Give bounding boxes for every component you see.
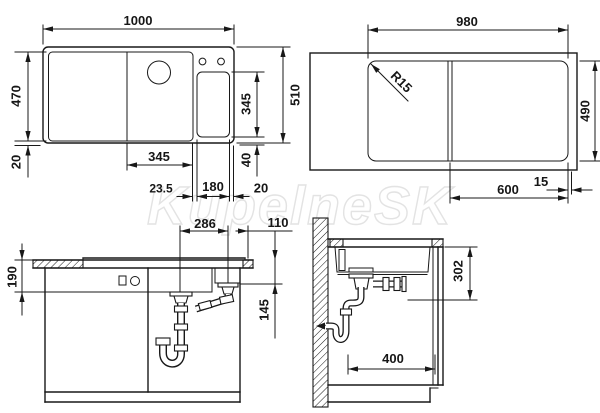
dim-cutout-depth: 490 — [578, 61, 600, 161]
pipe-coupling — [341, 309, 352, 315]
dim-edge-gap-left: 20 — [9, 146, 41, 178]
pipe-coupling — [383, 278, 389, 291]
drain-strainer-side — [349, 274, 373, 289]
sink-dimension-drawing: KupelneSK 1000 470 20 — [0, 0, 600, 413]
pipe-coupling — [175, 324, 188, 330]
front-section-view: 286 110 190 145 — [5, 215, 293, 402]
dim-980-label: 980 — [456, 14, 478, 29]
pipe-coupling — [175, 345, 188, 351]
dim-345-right-label: 345 — [239, 93, 254, 115]
drain-control-symbol — [119, 276, 126, 285]
pipe-coupling — [175, 306, 188, 312]
dim-overall-width: 1000 — [43, 13, 234, 44]
dim-40-label: 40 — [239, 153, 254, 167]
pipe-coupling — [394, 278, 400, 291]
counter-panel-outline — [310, 53, 577, 170]
dim-600-label: 600 — [497, 182, 519, 197]
pipe-coupling — [220, 295, 234, 305]
counter-cut-back — [330, 239, 343, 247]
main-drain-strainer — [170, 292, 192, 303]
dim-15-label: 15 — [534, 174, 548, 189]
wall-cut — [313, 218, 328, 407]
side-section-view: 302 400 — [313, 218, 477, 407]
dim-inner-depth: 470 — [9, 52, 47, 141]
dim-490-label: 490 — [578, 100, 593, 122]
drain-plate — [349, 268, 373, 272]
countertop-cut-right — [243, 260, 253, 268]
dim-20-left-label: 20 — [9, 155, 24, 169]
dim-470-label: 470 — [9, 85, 24, 107]
dim-bowl-depth: 345 — [232, 72, 264, 137]
dim-190-label: 190 — [5, 266, 20, 288]
bowl-side-section — [335, 247, 430, 275]
dim-400-label: 400 — [382, 351, 404, 366]
dim-trap-clearance: 400 — [348, 351, 435, 374]
dim-20-bottom-label: 20 — [254, 181, 268, 196]
dim-drain-depth: 145 — [240, 232, 282, 338]
counter-cut-front — [432, 239, 443, 247]
dim-345-bottom-label: 345 — [148, 149, 170, 164]
dim-bottom-gap: 40 — [239, 145, 265, 176]
sink-outer-outline — [43, 47, 234, 143]
trap-outlet-flange — [156, 338, 170, 345]
dim-1000-label: 1000 — [124, 13, 153, 28]
dim-510-label: 510 — [288, 84, 303, 106]
overflow-pipe — [339, 250, 345, 271]
dim-110-label: 110 — [268, 215, 289, 230]
dim-180-label: 180 — [202, 179, 224, 194]
dim-23-5-label: 23.5 — [149, 182, 173, 196]
base-cabinet-front — [45, 268, 240, 402]
siphon-trap-front — [156, 294, 234, 364]
pipe-end-flange — [402, 277, 406, 292]
dim-apron-height: 190 — [5, 244, 46, 315]
top-view: 1000 470 20 510 345 — [9, 13, 303, 201]
pipe-coupling — [198, 301, 211, 311]
dim-cutout-width: 980 — [368, 14, 568, 58]
half-bowl-strainer — [218, 283, 238, 294]
countertop-cut-left — [33, 260, 83, 268]
dim-286-label: 286 — [194, 216, 216, 231]
overflow-symbol — [131, 277, 140, 286]
dim-302-label: 302 — [451, 260, 466, 282]
dim-145-label: 145 — [257, 299, 272, 321]
cutout-view: R15 980 490 600 15 — [310, 14, 600, 203]
technical-drawing-page: KupelneSK 1000 470 20 — [0, 0, 600, 413]
